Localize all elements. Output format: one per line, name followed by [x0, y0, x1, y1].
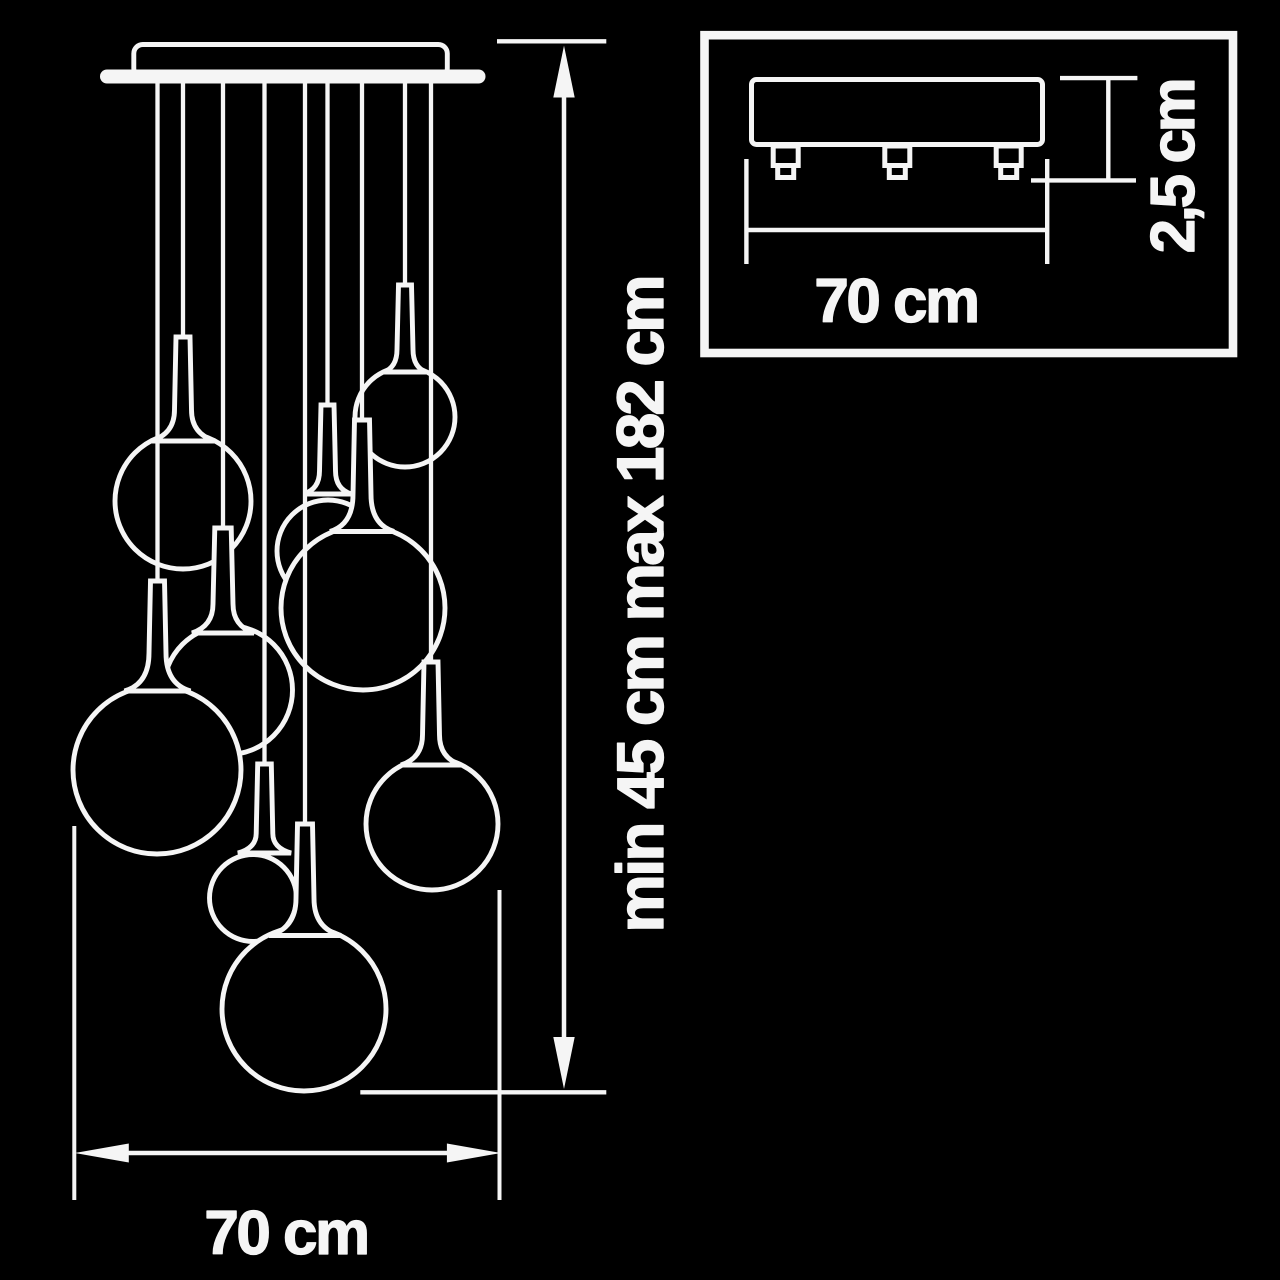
- svg-text:2,5 cm: 2,5 cm: [1139, 80, 1208, 253]
- svg-text:70 cm: 70 cm: [204, 1199, 367, 1268]
- svg-text:70 cm: 70 cm: [814, 267, 977, 336]
- svg-text:min 45 cm max 182 cm: min 45 cm max 182 cm: [603, 277, 677, 932]
